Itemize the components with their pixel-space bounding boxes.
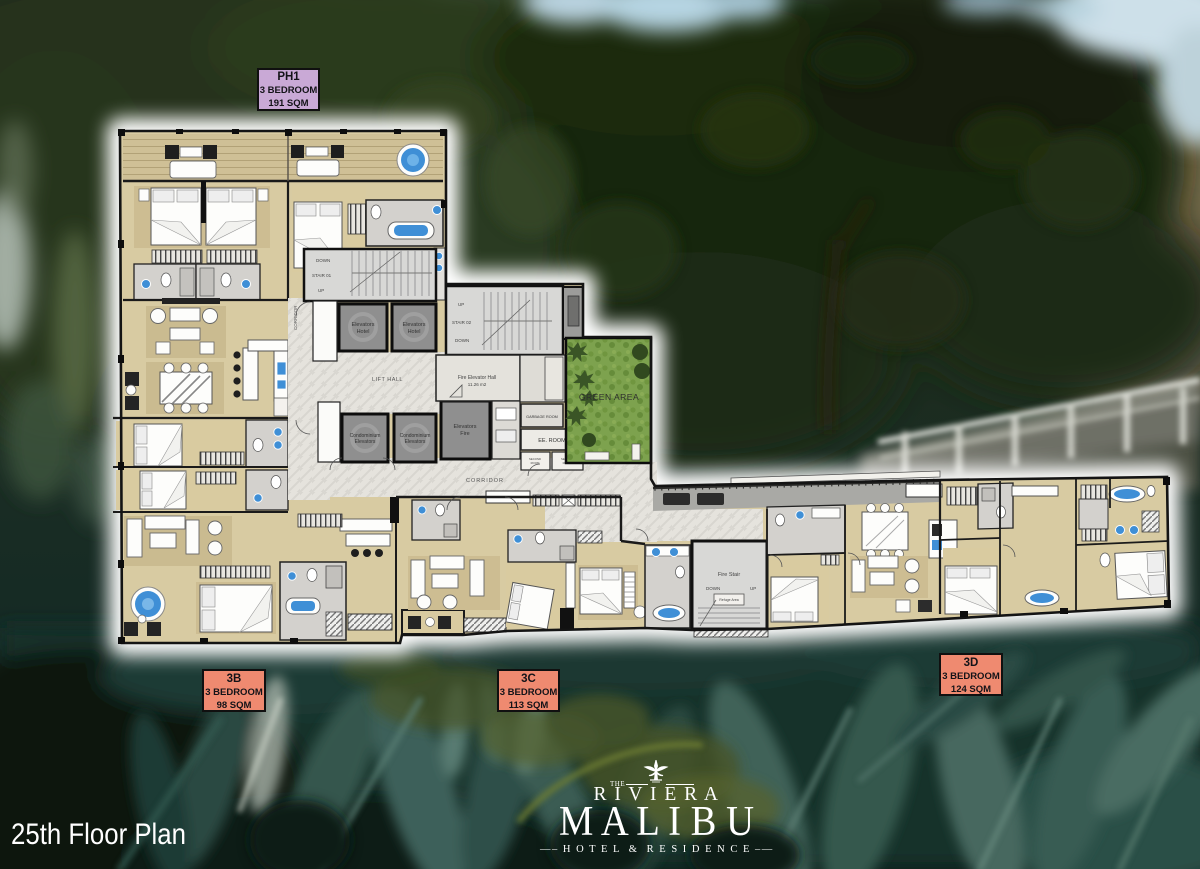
svg-text:CORRIDOR: CORRIDOR: [466, 478, 504, 484]
svg-text:11.26 m2: 11.26 m2: [468, 382, 487, 387]
svg-text:Hotel: Hotel: [357, 329, 370, 335]
svg-text:Elevators: Elevators: [352, 322, 375, 328]
svg-text:Refuge Area: Refuge Area: [719, 598, 739, 602]
svg-text:Elevators: Elevators: [454, 424, 477, 430]
svg-text:UP: UP: [458, 302, 464, 307]
svg-text:Elevators: Elevators: [403, 322, 426, 328]
svg-text:STAIR 02: STAIR 02: [452, 320, 472, 325]
svg-text:Elevators: Elevators: [355, 439, 376, 445]
svg-text:GREEN AREA: GREEN AREA: [579, 392, 639, 402]
svg-text:DOWN: DOWN: [706, 586, 720, 591]
svg-text:Fire Stair: Fire Stair: [718, 572, 740, 578]
svg-text:Fire: Fire: [460, 431, 469, 437]
svg-text:STAIR 01: STAIR 01: [312, 273, 332, 278]
svg-text:UP: UP: [318, 288, 324, 293]
svg-text:CORRIDOR: CORRIDOR: [293, 305, 298, 330]
svg-text:EE. ROOM: EE. ROOM: [538, 438, 566, 444]
svg-text:Elevators: Elevators: [405, 439, 426, 445]
svg-text:DOWN: DOWN: [455, 338, 469, 343]
svg-text:Hotel: Hotel: [408, 329, 421, 335]
svg-text:LIFT HALL: LIFT HALL: [372, 377, 403, 383]
svg-text:UP: UP: [750, 586, 756, 591]
svg-text:DOWN: DOWN: [316, 258, 330, 263]
svg-text:GARBAGE ROOM: GARBAGE ROOM: [526, 415, 558, 419]
svg-text:Fire Elevator Hall: Fire Elevator Hall: [458, 375, 496, 381]
